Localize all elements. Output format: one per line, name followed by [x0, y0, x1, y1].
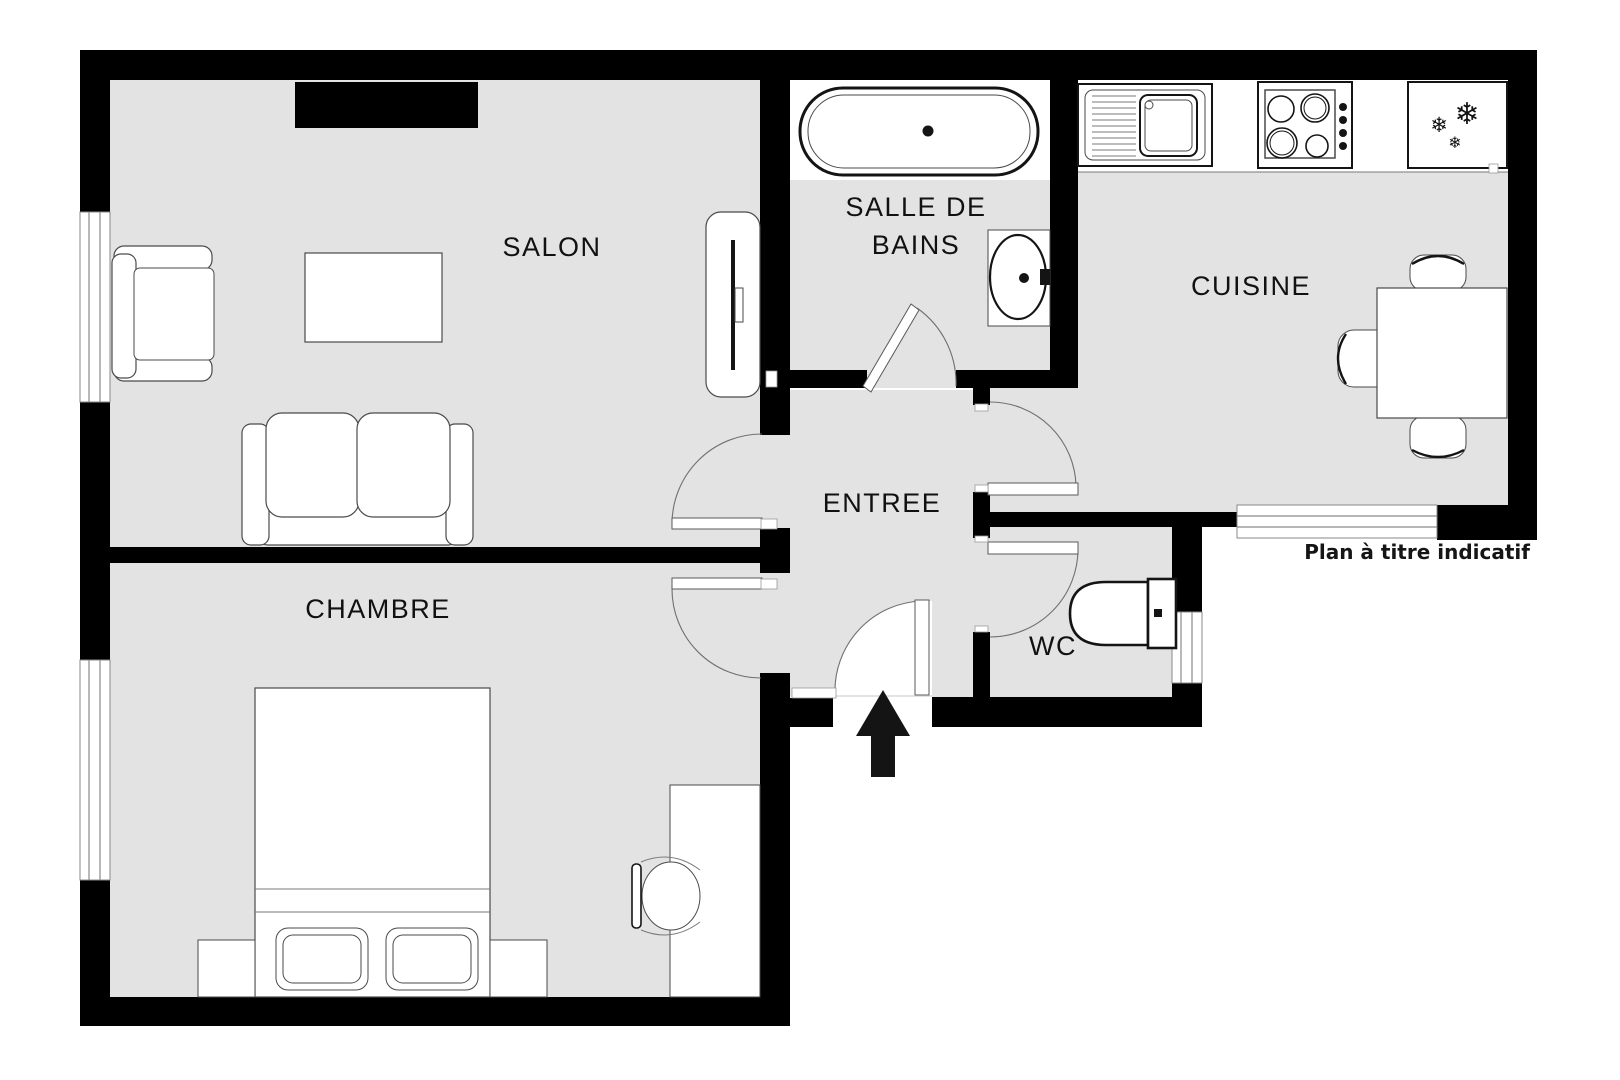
door-leaf — [988, 483, 1078, 495]
bathtub-drain — [923, 126, 934, 137]
wall-segment — [80, 997, 790, 1026]
kitchen-chair — [1410, 416, 1466, 458]
coffee-table — [305, 253, 442, 342]
pillow — [386, 928, 478, 990]
bathtub — [800, 88, 1038, 175]
nightstand — [198, 940, 255, 997]
tv-icon — [731, 240, 735, 370]
sofa — [242, 413, 473, 545]
snowflake-icon: ❄ — [1448, 133, 1461, 152]
wall-segment — [295, 82, 478, 128]
wall-segment — [932, 697, 1202, 727]
door-jamb — [975, 404, 988, 411]
bathroom-sink — [988, 230, 1050, 326]
wall-segment — [988, 512, 1240, 527]
nightstand — [490, 940, 547, 997]
flush-button — [1154, 609, 1162, 617]
cooktop — [1258, 82, 1352, 168]
entrance-arrow-icon — [856, 690, 910, 777]
bathroom-label-line2: BAINS — [872, 230, 961, 260]
kitchen-chair — [1410, 255, 1466, 291]
wall-segment — [80, 50, 1537, 80]
wall-segment — [1508, 50, 1537, 540]
wall-segment — [973, 632, 990, 697]
wall-segment — [973, 492, 990, 538]
kitchen-window — [1237, 505, 1437, 538]
pillow — [276, 928, 368, 990]
wall-segment — [790, 698, 833, 727]
door-leaf — [672, 518, 762, 529]
door-leaf — [988, 542, 1078, 554]
chambre-window — [80, 660, 110, 880]
bathroom-label-line1: SALLE DE — [845, 192, 986, 222]
toilet — [1070, 579, 1176, 648]
wall-segment — [765, 370, 867, 388]
faucet-icon — [1040, 269, 1050, 285]
door-jamb — [975, 626, 988, 632]
salon-label: SALON — [502, 232, 601, 262]
wall-segment — [760, 673, 790, 1025]
wall-segment — [80, 547, 760, 563]
entree-label: ENTREE — [823, 488, 942, 518]
wall-segment — [973, 387, 990, 405]
footnote: Plan à titre indicatif — [1304, 540, 1530, 564]
door-jamb — [975, 536, 988, 542]
door-leaf — [915, 600, 929, 695]
bed — [255, 688, 490, 997]
cuisine-label: CUISINE — [1191, 271, 1311, 301]
wall-segment — [80, 50, 110, 212]
door-jamb — [792, 688, 836, 698]
kitchen-sink — [1078, 84, 1212, 166]
salon-window — [80, 212, 110, 402]
fridge-handle — [1489, 164, 1498, 173]
wc-label: WC — [1029, 631, 1077, 661]
kitchen-table — [1377, 288, 1507, 418]
snowflake-icon: ❄ — [1454, 97, 1479, 132]
tv-console — [706, 212, 760, 397]
wall-segment — [1437, 505, 1537, 540]
floor-plan-svg: ❄ ❄ ❄ — [0, 0, 1620, 1080]
faucet-icon — [1145, 101, 1153, 109]
door-jamb — [761, 579, 777, 589]
wall-segment — [760, 528, 790, 573]
door-jamb — [975, 485, 988, 492]
wall-segment — [1050, 50, 1078, 388]
snowflake-icon: ❄ — [1430, 113, 1448, 137]
wall-segment — [1172, 683, 1202, 727]
door-leaf — [672, 578, 762, 589]
door-jamb — [766, 371, 777, 387]
door-jamb — [761, 519, 777, 529]
chambre-label: CHAMBRE — [305, 594, 451, 624]
armchair — [112, 246, 214, 381]
fridge: ❄ ❄ ❄ — [1408, 82, 1507, 173]
floor-plan-page: ❄ ❄ ❄ — [0, 0, 1620, 1080]
wall-segment — [80, 402, 110, 660]
